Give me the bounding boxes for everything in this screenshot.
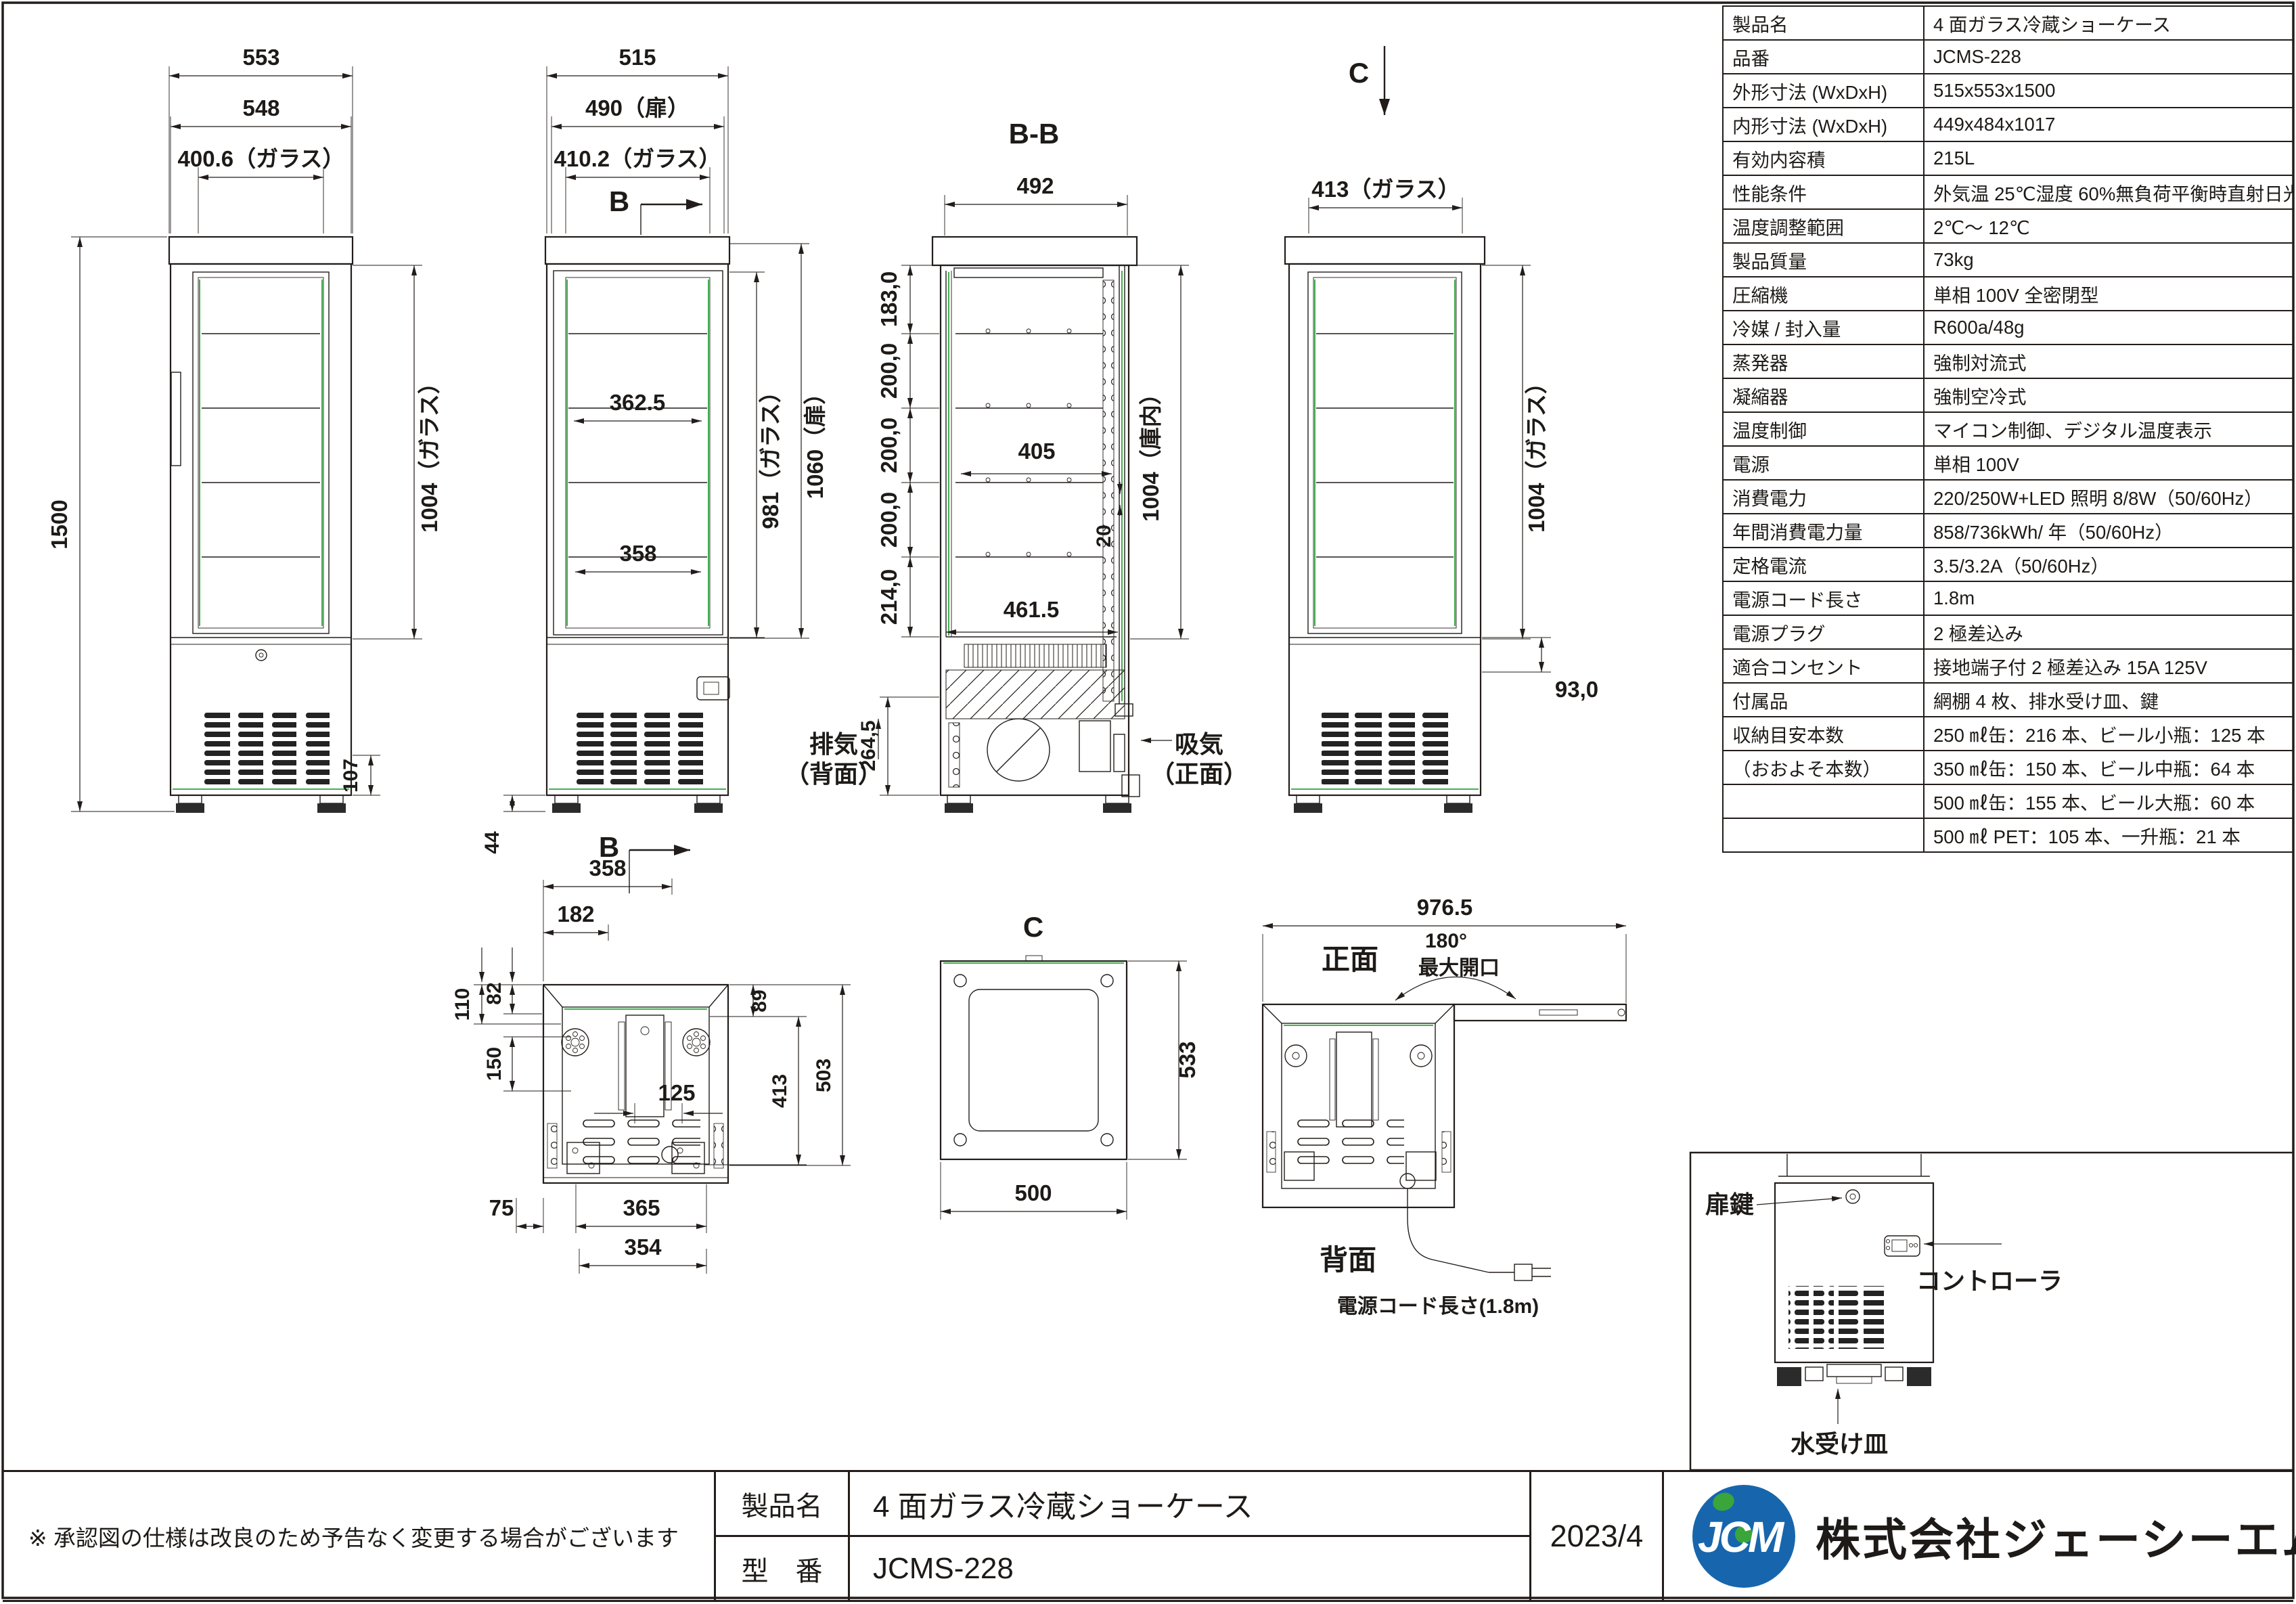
- controller: [1885, 1236, 1920, 1256]
- spec-label: 外形寸法 (WxDxH): [1723, 74, 1924, 108]
- open-door: [1454, 1004, 1626, 1021]
- intake-label2: （正面）: [1150, 760, 1248, 788]
- svg-text:89: 89: [748, 989, 771, 1012]
- title-block: ※ 承認図の仕様は改良のため予告なく変更する場合がございます 製品名 型 番 4…: [3, 1470, 2293, 1602]
- table-row: （おおよそ本数）350 ㎖缶：150 本、ビール中瓶：64 本: [1723, 751, 2293, 784]
- section-bb-view: B-B 492 183,0 200,0 200,0 200,0 214,0 26…: [785, 118, 1248, 813]
- svg-text:200,0: 200,0: [876, 343, 901, 399]
- dim-label: 93,0: [1555, 677, 1598, 702]
- shelf-lines: [1316, 334, 1454, 557]
- cord-length-note: 電源コード長さ(1.8m): [1337, 1295, 1539, 1318]
- title-labels: 製品名 型 番: [716, 1472, 850, 1600]
- jcm-logo-icon: JCM: [1692, 1485, 1795, 1588]
- back-view: C 413（ガラス） 1004（ガラス） 93,0: [1285, 46, 1598, 813]
- dim-label: 500: [1014, 1180, 1052, 1205]
- spec-value: 449x484x1017: [1924, 108, 2293, 141]
- vent-slots: [1289, 1113, 1404, 1164]
- dim-label: 1500: [47, 499, 72, 549]
- table-row: 500 ㎖ PET：105 本、一升瓶：21 本: [1723, 818, 2293, 852]
- dim-label: 1004（庫内）: [1138, 382, 1163, 521]
- foot: [317, 803, 346, 813]
- dim-label: 405: [1018, 439, 1055, 464]
- dim-label: 1004（ガラス）: [1524, 372, 1549, 533]
- rear-side-label: 背面: [1320, 1244, 1376, 1276]
- svg-text:125: 125: [658, 1080, 695, 1105]
- spec-value: 858/736kWh/ 年（50/60Hz）: [1924, 514, 2293, 548]
- spec-value: 500 ㎖缶：155 本、ビール大瓶：60 本: [1924, 784, 2293, 818]
- table-row: 収納目安本数250 ㎖缶：216 本、ビール小瓶：125 本: [1723, 717, 2293, 751]
- caster-plate: [562, 1029, 710, 1056]
- spec-value: 215L: [1924, 141, 2293, 175]
- detail-box: [1690, 1153, 2293, 1470]
- spec-label: 温度制御: [1723, 412, 1924, 446]
- brand-cell: JCM 株式会社ジェーシーエム: [1664, 1472, 2296, 1600]
- bottom-view: 358 182 110 82 150 125 89 413 503: [451, 855, 851, 1274]
- dim-label: 1060（扉）: [803, 382, 828, 499]
- spec-value: 2 極差込み: [1924, 615, 2293, 649]
- spec-label: 付属品: [1723, 683, 1924, 717]
- table-row: 温度調整範囲2℃～ 12℃: [1723, 209, 2293, 243]
- svg-text:503: 503: [813, 1059, 835, 1092]
- rear-open-view: 976.5 正面 180° 最大開口 背面 電源コード長さ(1.8m): [1263, 895, 1626, 1318]
- dim-label: 461.5: [1004, 597, 1060, 622]
- dim-label: 358: [619, 541, 656, 566]
- louver-grid: [203, 712, 330, 786]
- compressor-bracket: [1336, 1032, 1372, 1127]
- table-row: 適合コンセント接地端子付 2 極差込み 15A 125V: [1723, 649, 2293, 683]
- table-row: 定格電流3.5/3.2A（50/60Hz）: [1723, 548, 2293, 581]
- front-side-label: 正面: [1322, 943, 1378, 975]
- section-mark-c: C: [1349, 57, 1369, 89]
- table-row: 電源単相 100V: [1723, 446, 2293, 480]
- spec-value: 外気温 25℃湿度 60%無負荷平衡時直射日光受けず: [1924, 175, 2293, 209]
- section-title: B-B: [1009, 118, 1060, 150]
- spec-value: JCMS-228: [1924, 40, 2293, 74]
- spec-label: 電源プラグ: [1723, 615, 1924, 649]
- dim-label: 490（扉）: [585, 95, 690, 120]
- drain-pan: [1827, 1364, 1881, 1377]
- spec-label: 圧縮機: [1723, 277, 1924, 311]
- dim-label: 553: [242, 45, 279, 70]
- side-view: 553 548 400.6（ガラス） 1500 1004（ガラス） 107: [47, 45, 442, 813]
- spec-label: 適合コンセント: [1723, 649, 1924, 683]
- dim-label: 1004（ガラス）: [417, 372, 442, 533]
- spec-label: 製品質量: [1723, 243, 1924, 277]
- spec-label: 有効内容積: [1723, 141, 1924, 175]
- shelf-lines: [202, 334, 320, 557]
- table-row: 冷媒 / 封入量R600a/48g: [1723, 311, 2293, 344]
- spec-value: 2℃～ 12℃: [1924, 209, 2293, 243]
- company-name: 株式会社ジェーシーエム: [1816, 1504, 2296, 1569]
- svg-text:110: 110: [451, 988, 474, 1021]
- table-row: 蒸発器強制対流式: [1723, 344, 2293, 378]
- table-row: 500 ㎖缶：155 本、ビール大瓶：60 本: [1723, 784, 2293, 818]
- dim-label: 515: [618, 45, 656, 70]
- logo-green-dot: [1711, 1490, 1736, 1513]
- power-cord: [1408, 1188, 1489, 1272]
- louver-grid: [1788, 1286, 1884, 1349]
- table-row: 電源コード長さ1.8m: [1723, 581, 2293, 615]
- angle-note: 最大開口: [1418, 957, 1500, 979]
- title-values: 4 面ガラス冷蔵ショーケース JCMS-228: [850, 1472, 1531, 1600]
- section-title: C: [1023, 911, 1043, 943]
- spec-value: 単相 100V 全密閉型: [1924, 277, 2293, 311]
- intake-label: 吸気: [1175, 730, 1223, 758]
- table-row: 品番JCMS-228: [1723, 40, 2293, 74]
- spec-label: 内形寸法 (WxDxH): [1723, 108, 1924, 141]
- shelf-lines: [568, 334, 707, 557]
- product-name-value: 4 面ガラス冷蔵ショーケース: [850, 1472, 1529, 1537]
- front-view: 515 490（扉） 410.2（ガラス） B 362.5 358 981（ガラ…: [481, 45, 828, 893]
- dim-label: 362.5: [610, 390, 666, 415]
- lock-cylinder: [1846, 1190, 1860, 1203]
- revision-note: ※ 承認図の仕様は改良のため予告なく変更する場合がございます: [3, 1472, 716, 1600]
- spec-value: 接地端子付 2 極差込み 15A 125V: [1924, 649, 2293, 683]
- dim-label: 410.2（ガラス）: [554, 146, 721, 171]
- spec-label: 蒸発器: [1723, 344, 1924, 378]
- spec-label: 消費電力: [1723, 480, 1924, 514]
- canopy: [932, 237, 1137, 265]
- svg-text:413: 413: [769, 1074, 791, 1108]
- svg-text:183,0: 183,0: [876, 271, 901, 328]
- dim-label: 400.6（ガラス）: [178, 146, 345, 171]
- spec-label: 凝縮器: [1723, 378, 1924, 412]
- spec-label: 収納目安本数: [1723, 717, 1924, 751]
- dim-label: 358: [589, 855, 626, 881]
- svg-text:200,0: 200,0: [876, 492, 901, 548]
- plug-icon: [1489, 1264, 1551, 1280]
- dim-label: 413（ガラス）: [1311, 177, 1460, 202]
- table-row: 凝縮器強制空冷式: [1723, 378, 2293, 412]
- spec-label: 電源コード長さ: [1723, 581, 1924, 615]
- table-row: 年間消費電力量858/736kWh/ 年（50/60Hz）: [1723, 514, 2293, 548]
- svg-text:354: 354: [624, 1234, 662, 1260]
- dim-label: 492: [1016, 173, 1054, 198]
- spec-label: 年間消費電力量: [1723, 514, 1924, 548]
- detail-view: 扉鍵 コントローラ 水受け皿: [1690, 1153, 2293, 1470]
- spec-value: 350 ㎖缶：150 本、ビール中瓶：64 本: [1924, 751, 2293, 784]
- foot: [176, 803, 204, 813]
- hinge-plate: [1406, 1152, 1436, 1180]
- foot: [1907, 1367, 1931, 1386]
- spec-label: （おおよそ本数）: [1723, 751, 1924, 784]
- drawing-date: 2023/4: [1531, 1472, 1664, 1600]
- table-row: 外形寸法 (WxDxH)515x553x1500: [1723, 74, 2293, 108]
- cabinet-outline: [1289, 264, 1481, 795]
- spec-label: 品番: [1723, 40, 1924, 74]
- logo-text: JCM: [1698, 1512, 1781, 1562]
- spec-value: 4 面ガラス冷蔵ショーケース: [1924, 6, 2293, 40]
- table-row: 電源プラグ2 極差込み: [1723, 615, 2293, 649]
- spec-value: 単相 100V: [1924, 446, 2293, 480]
- spec-value: 強制対流式: [1924, 344, 2293, 378]
- svg-text:214,0: 214,0: [876, 569, 901, 625]
- foot: [552, 803, 581, 813]
- spec-value: 1.8m: [1924, 581, 2293, 615]
- table-row: 有効内容積215L: [1723, 141, 2293, 175]
- door-lock: [256, 650, 267, 661]
- door-hinge-rail: [171, 372, 181, 466]
- svg-text:150: 150: [483, 1047, 505, 1081]
- dim-label: 981（ガラス）: [758, 380, 783, 529]
- lamp-housing: [954, 268, 1103, 277]
- spec-value: R600a/48g: [1924, 311, 2293, 344]
- spec-value: 515x553x1500: [1924, 74, 2293, 108]
- spec-label: 冷媒 / 封入量: [1723, 311, 1924, 344]
- dim-label: 182: [557, 901, 594, 927]
- controller-panel: [697, 677, 729, 700]
- cabinet-outline: [1263, 1004, 1454, 1207]
- canopy: [545, 237, 729, 264]
- table-row: 消費電力220/250W+LED 照明 8/8W（50/60Hz）: [1723, 480, 2293, 514]
- svg-text:200,0: 200,0: [876, 418, 901, 474]
- shelf-pitch-dims: 183,0 200,0 200,0 200,0 214,0: [876, 265, 939, 637]
- spec-table: 製品名4 面ガラス冷蔵ショーケース 品番JCMS-228 外形寸法 (WxDxH…: [1722, 5, 2294, 853]
- spec-label: 製品名: [1723, 6, 1924, 40]
- dim-label: 20: [1093, 525, 1115, 547]
- louver-grid: [1322, 712, 1448, 786]
- model-number-label: 型 番: [716, 1537, 848, 1600]
- spec-label: [1723, 818, 1924, 852]
- base-plate: [941, 961, 1127, 1159]
- spec-label: 性能条件: [1723, 175, 1924, 209]
- spec-value: 強制空冷式: [1924, 378, 2293, 412]
- louver-grid: [577, 712, 703, 786]
- spec-value: 250 ㎖缶：216 本、ビール小瓶：125 本: [1924, 717, 2293, 751]
- table-row: 付属品網棚 4 枚、排水受け皿、鍵: [1723, 683, 2293, 717]
- shelf-support-strip: [1103, 280, 1114, 701]
- foot: [694, 803, 723, 813]
- compressor: [1079, 721, 1110, 772]
- foot: [1777, 1367, 1801, 1386]
- table-row: 製品名4 面ガラス冷蔵ショーケース: [1723, 6, 2293, 40]
- dim-label: 107: [340, 759, 362, 793]
- dim-label: 533: [1175, 1041, 1200, 1078]
- spec-value: 500 ㎖ PET：105 本、一升瓶：21 本: [1924, 818, 2293, 852]
- dim-label: 976.5: [1417, 895, 1473, 920]
- section-mark-b: B: [609, 185, 629, 217]
- controller-label: コントローラ: [1916, 1267, 2063, 1295]
- cord-hole: [1400, 1174, 1415, 1188]
- product-name-label: 製品名: [716, 1472, 848, 1537]
- svg-text:82: 82: [483, 982, 505, 1004]
- lock-label: 扉鍵: [1705, 1190, 1754, 1218]
- drain-pan-label: 水受け皿: [1791, 1430, 1888, 1458]
- spec-value: マイコン制御、デジタル温度表示: [1924, 412, 2293, 446]
- drawing-sheet: 553 548 400.6（ガラス） 1500 1004（ガラス） 107 51…: [0, 0, 2296, 1601]
- spec-label: 定格電流: [1723, 548, 1924, 581]
- dim-label: 44: [481, 831, 503, 854]
- spec-label: 電源: [1723, 446, 1924, 480]
- table-row: 内形寸法 (WxDxH)449x484x1017: [1723, 108, 2293, 141]
- vent-slots: [572, 1110, 700, 1164]
- exhaust-label2: （背面）: [785, 760, 882, 788]
- canopy: [169, 237, 353, 264]
- svg-text:75: 75: [489, 1195, 514, 1220]
- table-row: 性能条件外気温 25℃湿度 60%無負荷平衡時直射日光受けず: [1723, 175, 2293, 209]
- spec-value: 3.5/3.2A（50/60Hz）: [1924, 548, 2293, 581]
- model-number-value: JCMS-228: [850, 1537, 1529, 1600]
- svg-text:365: 365: [623, 1195, 660, 1220]
- spec-label: 温度調整範囲: [1723, 209, 1924, 243]
- table-row: 圧縮機単相 100V 全密閉型: [1723, 277, 2293, 311]
- exhaust-label: 排気: [809, 730, 858, 758]
- canopy: [1285, 237, 1485, 264]
- angle-label: 180°: [1425, 930, 1467, 952]
- spec-value: 220/250W+LED 照明 8/8W（50/60Hz）: [1924, 480, 2293, 514]
- dim-label: 548: [242, 95, 279, 120]
- spec-label: [1723, 784, 1924, 818]
- spec-value: 網棚 4 枚、排水受け皿、鍵: [1924, 683, 2293, 717]
- spec-value: 73kg: [1924, 243, 2293, 277]
- section-c-view: C 500 533: [941, 911, 1200, 1220]
- table-row: 製品質量73kg: [1723, 243, 2293, 277]
- table-row: 温度制御マイコン制御、デジタル温度表示: [1723, 412, 2293, 446]
